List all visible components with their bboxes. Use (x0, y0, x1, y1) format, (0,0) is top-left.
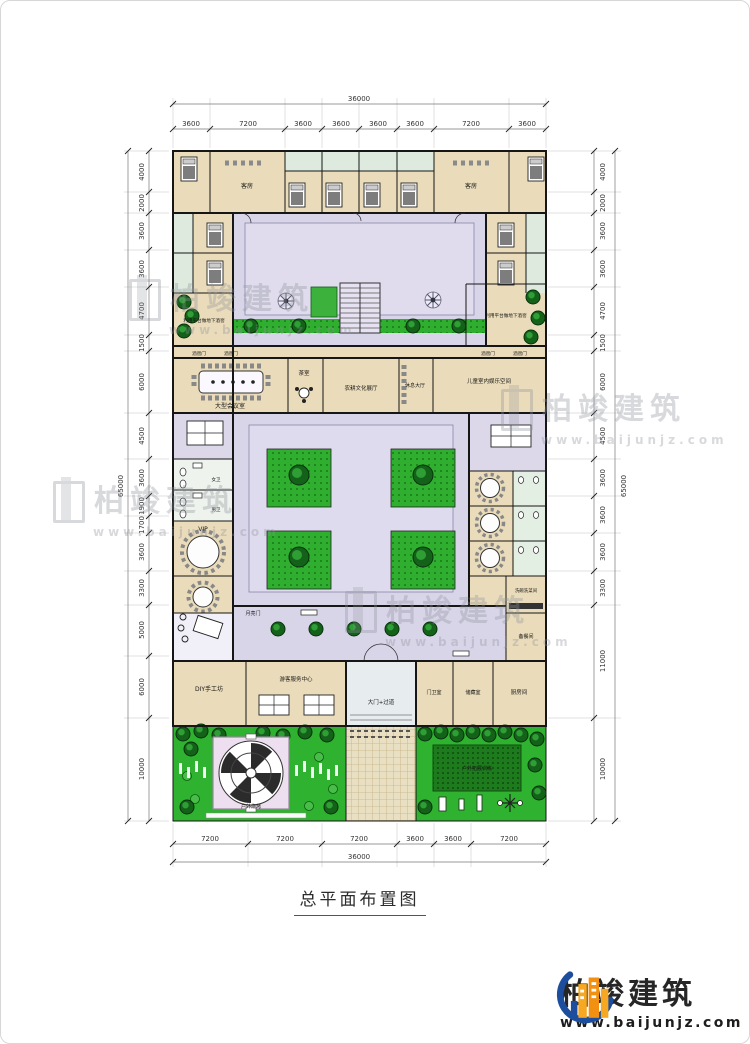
label-cellar-left: 利用平台做地下酒窖 (183, 317, 225, 324)
garden-path (206, 813, 306, 818)
dim-top-2: 3600 (294, 120, 312, 128)
dim-top-1: 7200 (239, 120, 257, 128)
dim-top-0: 3600 (182, 120, 200, 128)
dim-right-12: 11000 (599, 650, 607, 672)
dim-top-7: 3600 (518, 120, 536, 128)
label-guest-room-right: 客房 (465, 182, 477, 190)
dim-left-15: 10000 (138, 758, 146, 780)
dim-right-0: 4000 (599, 163, 607, 181)
dim-top-3: 3600 (332, 120, 350, 128)
label-main-gate: 大门+过道 (368, 698, 395, 706)
dim-left-7: 4500 (138, 427, 146, 445)
label-storage: 储藏室 (465, 689, 480, 696)
dim-left-11: 3600 (138, 543, 146, 561)
dim-left-8: 3600 (138, 469, 146, 487)
label-outdoor-training: 户外拓展训练 (462, 765, 492, 772)
dim-top-total: 36000 (348, 95, 370, 103)
dim-left-5: 1500 (138, 334, 146, 352)
label-moon-gate: 月亮门 (245, 610, 260, 617)
dim-bottom-0: 7200 (201, 835, 219, 843)
outdoor-areas (173, 724, 546, 821)
dim-right-1: 2000 (599, 194, 607, 212)
dim-left-3: 3600 (138, 260, 146, 278)
dim-left-10: 1700 (138, 516, 146, 534)
label-tea-room: 茶室 (298, 369, 310, 377)
drawing-sheet: 3600 7200 3600 3600 3600 3600 7200 3600 … (0, 0, 750, 1044)
drawing-title-text: 总平面布置图 (294, 890, 426, 916)
label-diy-workshop: DIY手工坊 (195, 685, 223, 693)
dim-right-4: 4700 (599, 302, 607, 320)
conference-table (194, 366, 268, 398)
label-guest-room-left: 客房 (241, 182, 253, 190)
label-cellar-right: 利用平台做地下酒窖 (485, 312, 527, 319)
label-wash-room: 洗碗洗菜间 (515, 587, 537, 594)
dim-right-total: 65000 (620, 475, 628, 497)
dim-left-9: 1900 (138, 497, 146, 515)
dim-right-13: 10000 (599, 758, 607, 780)
dim-left-14: 6000 (138, 678, 146, 696)
label-visitor-center: 游客服务中心 (279, 675, 313, 683)
dim-left-total: 65000 (117, 475, 125, 497)
dim-left-4: 4700 (138, 302, 146, 320)
dim-right-7: 4500 (599, 427, 607, 445)
label-vip: VIP (198, 526, 208, 533)
dim-left-13: 5000 (138, 621, 146, 639)
label-rest-hall: 休息大厅 (405, 382, 425, 389)
drawing-title: 总平面布置图 (173, 885, 546, 910)
label-conference: 大型会议室 (215, 402, 245, 410)
dim-bottom-3: 3600 (406, 835, 424, 843)
label-cellar-door-4: 酒窖门 (513, 350, 527, 357)
dim-left-0: 4000 (138, 163, 146, 181)
dim-top-6: 7200 (462, 120, 480, 128)
label-guard-room: 门卫室 (426, 689, 441, 696)
dim-bottom-total: 36000 (348, 853, 370, 861)
bbq-plaza (213, 734, 289, 812)
dim-left-2: 3600 (138, 222, 146, 240)
dim-bottom-1: 7200 (276, 835, 294, 843)
label-cellar-door-2: 酒窖门 (224, 350, 238, 357)
dim-right-6: 6000 (599, 373, 607, 391)
label-culture-hall: 农耕文化展厅 (344, 384, 378, 392)
label-cellar-door-3: 酒窖门 (481, 350, 495, 357)
brand-logo: 柏竣建筑 www.baijunjz.com (554, 969, 743, 1031)
room-fills (173, 151, 546, 726)
dim-right-11: 3300 (599, 579, 607, 597)
dim-right-8: 3600 (599, 469, 607, 487)
dim-bottom-5: 7200 (500, 835, 518, 843)
dim-right-3: 3600 (599, 260, 607, 278)
dim-left-6: 6000 (138, 373, 146, 391)
dim-right-5: 1500 (599, 334, 607, 352)
label-male-wc: 男卫 (212, 507, 221, 513)
dim-top-5: 3600 (406, 120, 424, 128)
label-cellar-door-1: 酒窖门 (192, 350, 206, 357)
label-outdoor-bbq: 户外烧烤 (241, 803, 261, 810)
dim-right-9: 3600 (599, 506, 607, 524)
dim-right-2: 3600 (599, 222, 607, 240)
dim-bottom-2: 7200 (350, 835, 368, 843)
brand-logo-icon (554, 969, 614, 1031)
dim-top-4: 3600 (369, 120, 387, 128)
dim-left-12: 3300 (138, 579, 146, 597)
label-kitchen: 厨房间 (511, 688, 528, 696)
label-kids-space: 儿童室内娱乐空间 (467, 377, 511, 385)
label-female-wc: 女卫 (212, 476, 221, 483)
stairs (340, 283, 380, 333)
label-prep-room: 备餐间 (518, 633, 533, 640)
dim-bottom-4: 3600 (444, 835, 462, 843)
dim-right-10: 3600 (599, 543, 607, 561)
dim-left-1: 2000 (138, 194, 146, 212)
